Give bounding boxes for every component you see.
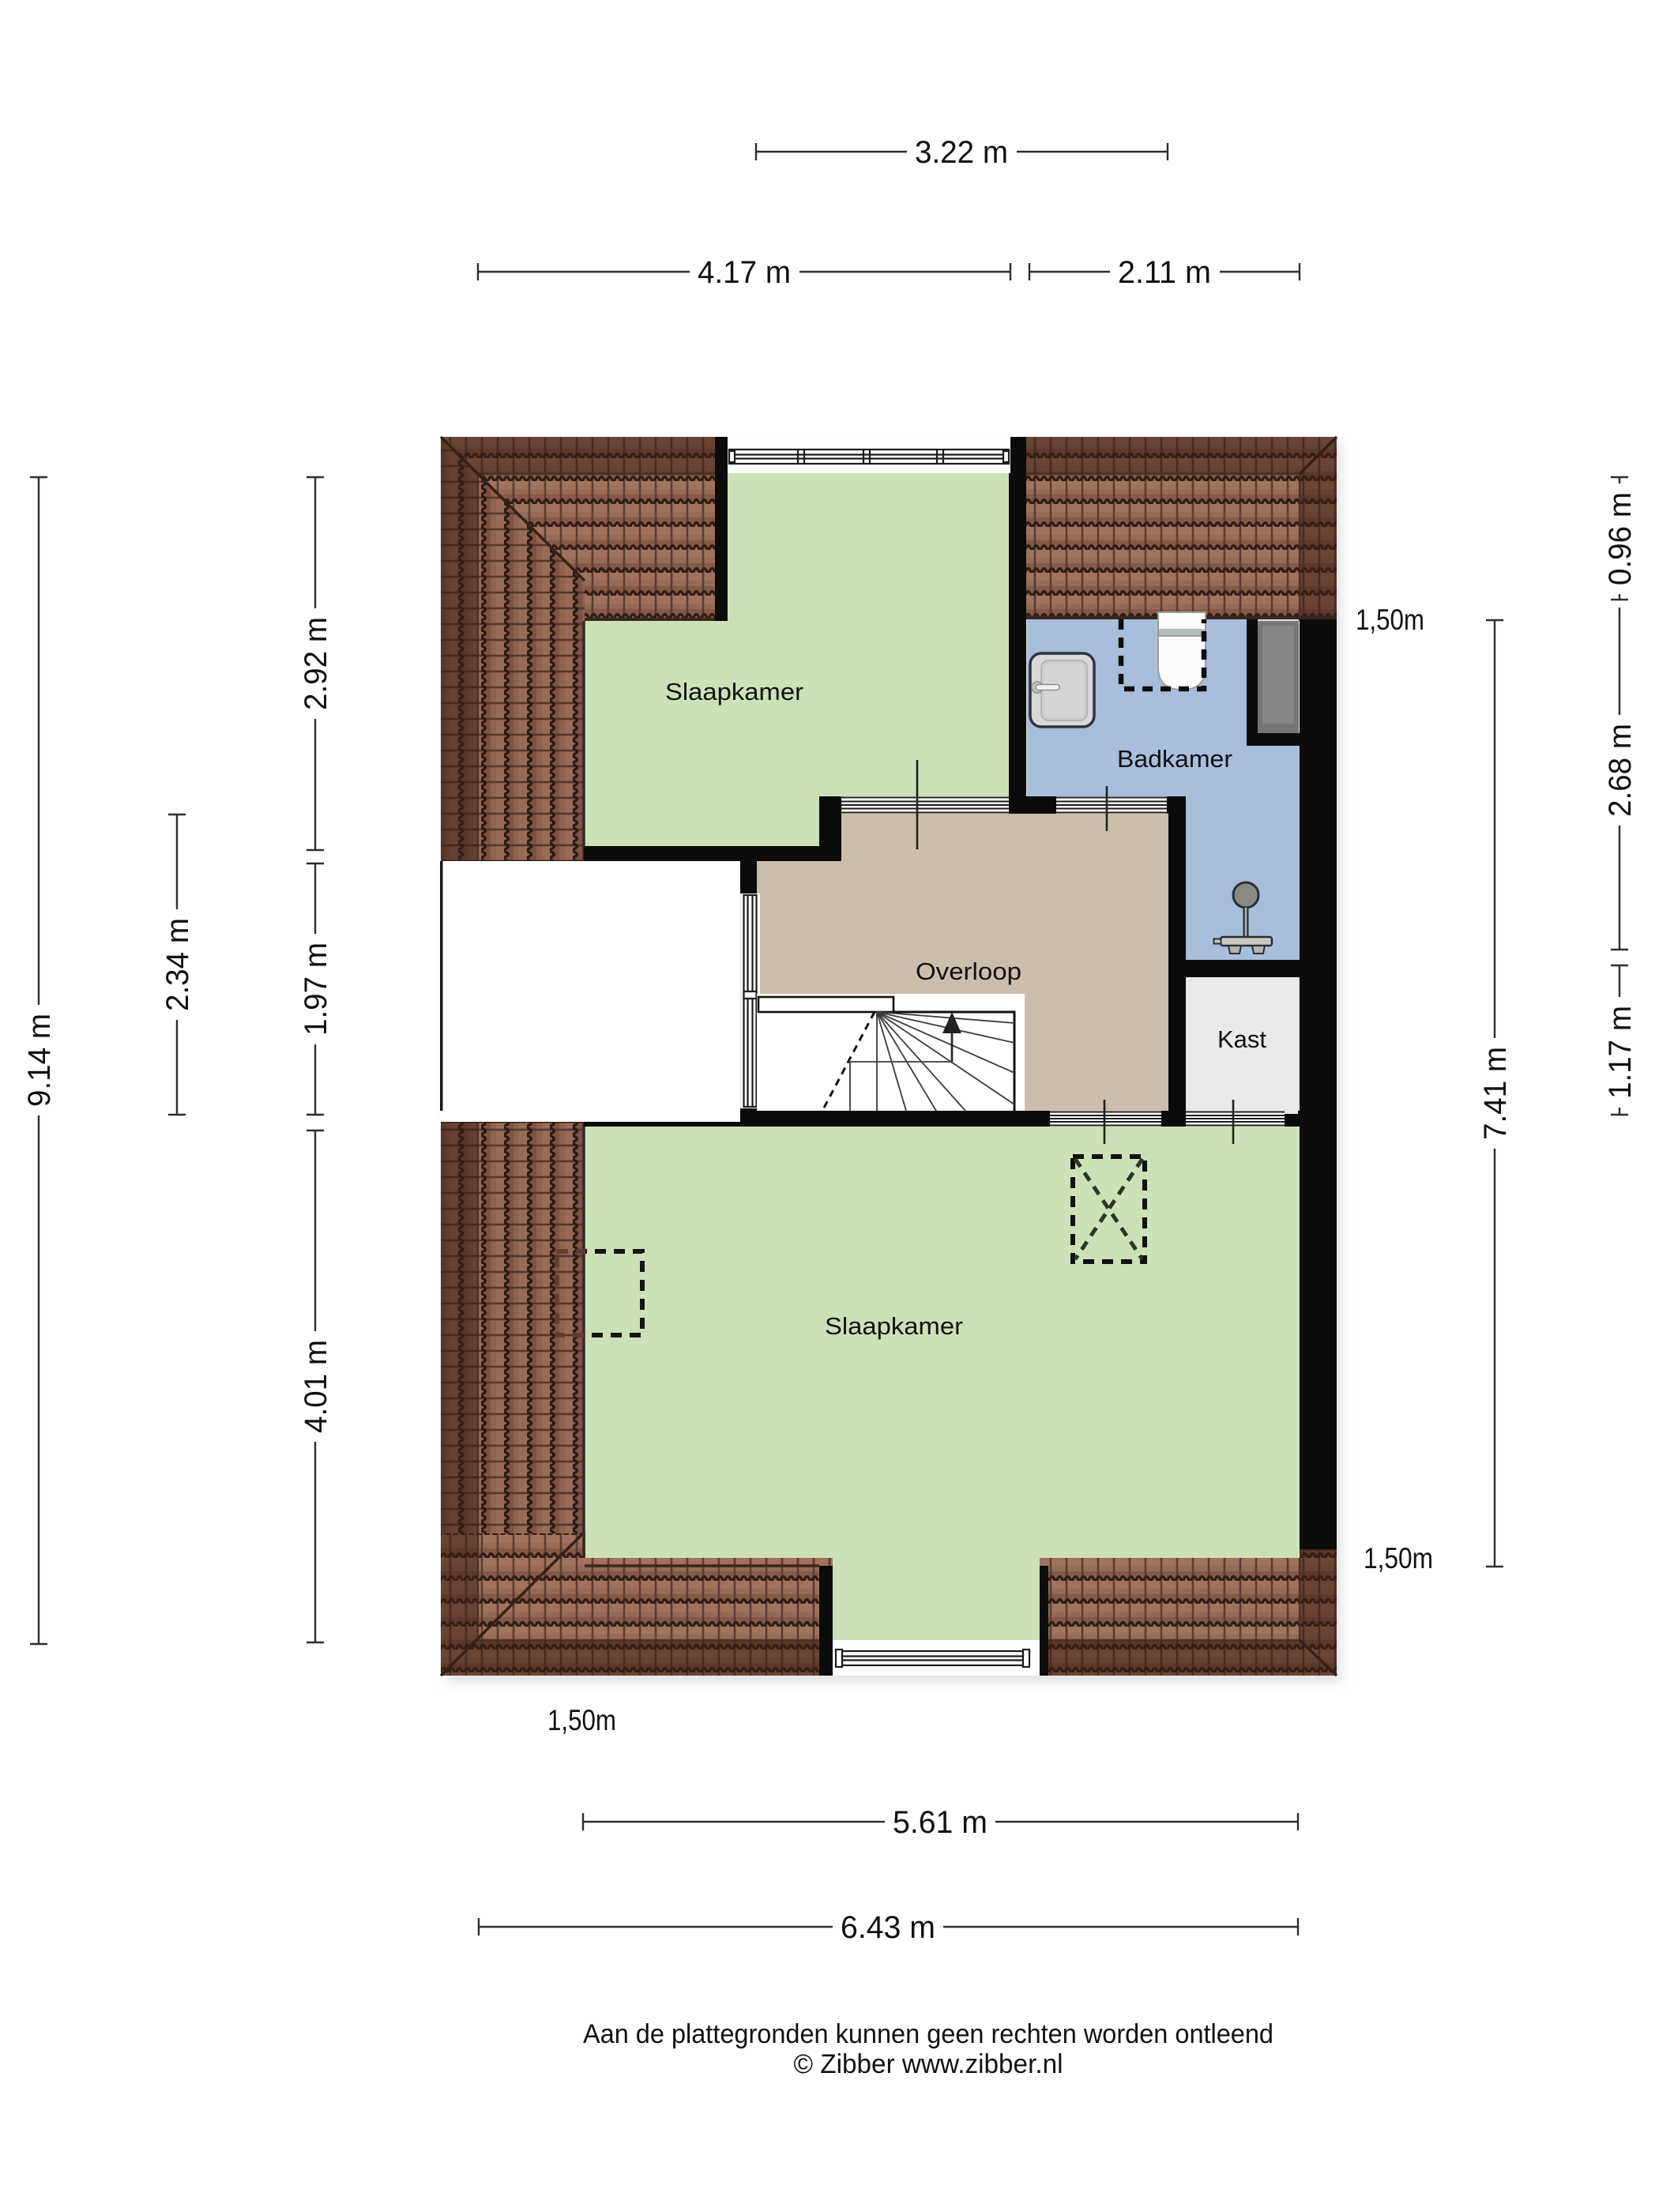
svg-text:1,50m: 1,50m	[1356, 604, 1424, 636]
svg-text:2.34 m: 2.34 m	[160, 918, 195, 1011]
svg-text:2.92 m: 2.92 m	[299, 617, 333, 710]
svg-text:4.01 m: 4.01 m	[299, 1340, 333, 1433]
svg-text:5.61 m: 5.61 m	[893, 1805, 987, 1840]
svg-text:3.22 m: 3.22 m	[915, 135, 1008, 170]
svg-text:Kast: Kast	[1217, 1025, 1266, 1053]
svg-text:1,50m: 1,50m	[1364, 1542, 1433, 1574]
svg-text:Aan de plattegronden kunnen ge: Aan de plattegronden kunnen geen rechten…	[583, 2019, 1273, 2049]
svg-text:1.17 m: 1.17 m	[1603, 1006, 1638, 1099]
svg-text:1.97 m: 1.97 m	[299, 942, 333, 1036]
svg-text:Overloop: Overloop	[916, 957, 1021, 985]
svg-text:Badkamer: Badkamer	[1117, 745, 1232, 773]
svg-text:6.43 m: 6.43 m	[841, 1910, 935, 1945]
svg-text:2.68 m: 2.68 m	[1603, 724, 1638, 817]
svg-text:4.17 m: 4.17 m	[698, 255, 791, 290]
svg-text:© Zibber www.zibber.nl: © Zibber www.zibber.nl	[794, 2049, 1063, 2079]
svg-text:7.41 m: 7.41 m	[1478, 1047, 1513, 1140]
svg-text:9.14 m: 9.14 m	[22, 1014, 57, 1107]
svg-text:0.96 m: 0.96 m	[1603, 492, 1638, 585]
svg-text:1,50m: 1,50m	[547, 1704, 616, 1736]
svg-text:2.11 m: 2.11 m	[1118, 255, 1211, 290]
svg-text:Slaapkamer: Slaapkamer	[665, 678, 803, 705]
svg-text:Slaapkamer: Slaapkamer	[825, 1312, 963, 1340]
